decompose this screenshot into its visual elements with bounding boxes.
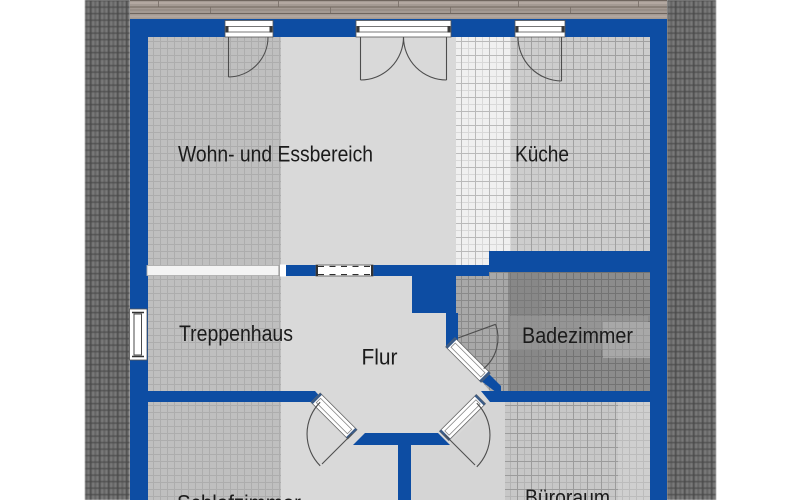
svg-text:Flur: Flur [362, 345, 398, 370]
svg-text:Schlafzimmer: Schlafzimmer [177, 491, 301, 500]
svg-text:Küche: Küche [515, 142, 569, 167]
svg-text:Wohn- und Essbereich: Wohn- und Essbereich [178, 142, 373, 167]
svg-text:Treppenhaus: Treppenhaus [179, 321, 293, 346]
svg-text:Badezimmer: Badezimmer [522, 323, 633, 348]
svg-text:Büroraum: Büroraum [525, 485, 610, 500]
